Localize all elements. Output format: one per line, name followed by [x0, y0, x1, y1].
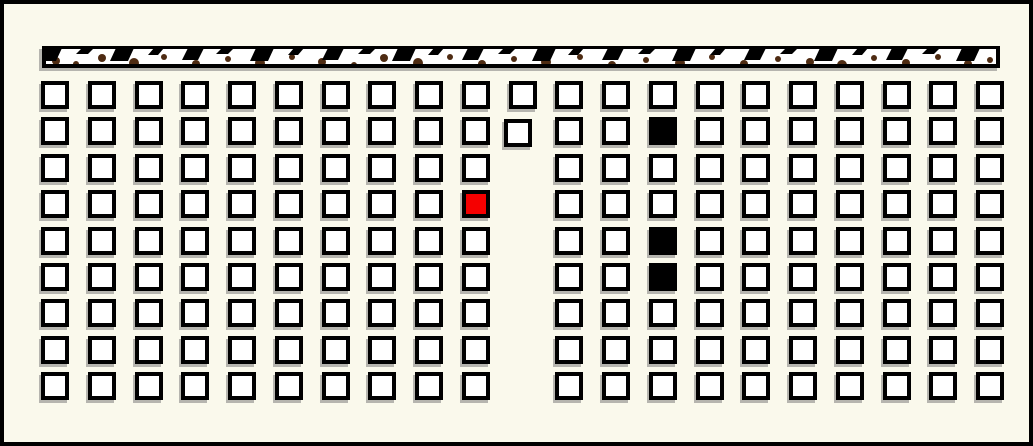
seat-cell[interactable]	[322, 81, 350, 109]
seat-cell[interactable]	[41, 190, 69, 218]
seat-cell[interactable]	[602, 154, 630, 182]
seat-cell[interactable]	[976, 190, 1004, 218]
seat-cell[interactable]	[368, 227, 396, 255]
seat-cell[interactable]	[181, 372, 209, 400]
seat-cell[interactable]	[41, 299, 69, 327]
seat-cell[interactable]	[135, 117, 163, 145]
seat-cell[interactable]	[135, 372, 163, 400]
seat-cell[interactable]	[41, 336, 69, 364]
seat-cell[interactable]	[368, 263, 396, 291]
seat-cell[interactable]	[742, 336, 770, 364]
seat-cell[interactable]	[742, 81, 770, 109]
seat-cell[interactable]	[836, 299, 864, 327]
seat-cell[interactable]	[41, 263, 69, 291]
seat-cell-red[interactable]	[462, 190, 490, 218]
seat-cell[interactable]	[275, 227, 303, 255]
seat-cell[interactable]	[602, 81, 630, 109]
seat-cell[interactable]	[555, 299, 583, 327]
seat-cell[interactable]	[462, 299, 490, 327]
seat-cell[interactable]	[649, 190, 677, 218]
seat-cell[interactable]	[228, 372, 256, 400]
board-strip	[42, 46, 1000, 68]
seat-cell[interactable]	[41, 117, 69, 145]
seat-cell[interactable]	[88, 372, 116, 400]
seat-cell[interactable]	[368, 299, 396, 327]
seat-cell[interactable]	[789, 299, 817, 327]
seat-cell[interactable]	[976, 336, 1004, 364]
seat-cell[interactable]	[696, 227, 724, 255]
seat-cell[interactable]	[976, 299, 1004, 327]
seat-cell[interactable]	[883, 81, 911, 109]
seat-cell[interactable]	[883, 336, 911, 364]
seat-cell[interactable]	[789, 154, 817, 182]
seat-cell[interactable]	[929, 263, 957, 291]
seat-cell[interactable]	[368, 372, 396, 400]
seat-cell[interactable]	[275, 190, 303, 218]
seat-cell[interactable]	[322, 190, 350, 218]
seat-cell[interactable]	[555, 154, 583, 182]
seat-cell[interactable]	[88, 227, 116, 255]
seat-cell[interactable]	[41, 81, 69, 109]
seat-cell[interactable]	[462, 263, 490, 291]
seat-cell[interactable]	[415, 299, 443, 327]
seat-cell[interactable]	[602, 190, 630, 218]
seat-cell[interactable]	[555, 336, 583, 364]
seat-cell[interactable]	[368, 81, 396, 109]
seat-cell[interactable]	[789, 227, 817, 255]
seat-cell[interactable]	[415, 263, 443, 291]
seat-cell[interactable]	[976, 117, 1004, 145]
seat-cell[interactable]	[368, 154, 396, 182]
seat-cell[interactable]	[275, 81, 303, 109]
seat-cell[interactable]	[41, 372, 69, 400]
seat-cell[interactable]	[976, 81, 1004, 109]
seat-cell[interactable]	[228, 190, 256, 218]
seat-cell[interactable]	[555, 227, 583, 255]
seat-cell[interactable]	[742, 263, 770, 291]
seat-cell[interactable]	[415, 117, 443, 145]
seat-cell[interactable]	[929, 372, 957, 400]
seat-cell[interactable]	[602, 336, 630, 364]
seat-cell[interactable]	[649, 336, 677, 364]
board-strip-svg	[42, 46, 1000, 68]
seat-cell[interactable]	[88, 299, 116, 327]
seat-cell[interactable]	[88, 81, 116, 109]
seat-cell[interactable]	[929, 81, 957, 109]
seat-cell[interactable]	[696, 263, 724, 291]
seat-cell[interactable]	[415, 227, 443, 255]
seat-cell[interactable]	[976, 227, 1004, 255]
seat-cell[interactable]	[181, 336, 209, 364]
seat-cell[interactable]	[415, 154, 443, 182]
seat-cell[interactable]	[462, 117, 490, 145]
seat-cell[interactable]	[929, 117, 957, 145]
seat-cell[interactable]	[228, 227, 256, 255]
seat-cell[interactable]	[836, 117, 864, 145]
seat-cell[interactable]	[649, 154, 677, 182]
seat-cell[interactable]	[555, 81, 583, 109]
seat-cell[interactable]	[135, 190, 163, 218]
seat-cell[interactable]	[742, 227, 770, 255]
seat-cell[interactable]	[462, 227, 490, 255]
seat-cell[interactable]	[322, 154, 350, 182]
seat-cell[interactable]	[929, 299, 957, 327]
seat-cell[interactable]	[41, 227, 69, 255]
seat-cell[interactable]	[696, 81, 724, 109]
seat-cell[interactable]	[275, 372, 303, 400]
seat-cell[interactable]	[228, 154, 256, 182]
seat-cell[interactable]	[649, 372, 677, 400]
seat-cell[interactable]	[228, 299, 256, 327]
seat-cell[interactable]	[555, 263, 583, 291]
seat-cell[interactable]	[181, 190, 209, 218]
seat-cell[interactable]	[135, 263, 163, 291]
seat-cell[interactable]	[929, 190, 957, 218]
seat-cell[interactable]	[322, 227, 350, 255]
seat-cell[interactable]	[789, 263, 817, 291]
seat-cell[interactable]	[181, 154, 209, 182]
seat-cell[interactable]	[602, 299, 630, 327]
seat-cell[interactable]	[555, 190, 583, 218]
seat-cell[interactable]	[649, 299, 677, 327]
seat-cell[interactable]	[696, 336, 724, 364]
seat-cell[interactable]	[181, 117, 209, 145]
seat-cell[interactable]	[275, 299, 303, 327]
seat-cell[interactable]	[41, 154, 69, 182]
seat-cell[interactable]	[509, 81, 537, 109]
seat-cell[interactable]	[602, 117, 630, 145]
seat-cell[interactable]	[836, 154, 864, 182]
seat-cell[interactable]	[836, 81, 864, 109]
seat-cell[interactable]	[275, 117, 303, 145]
seat-cell[interactable]	[181, 299, 209, 327]
seat-cell[interactable]	[696, 154, 724, 182]
seat-cell[interactable]	[88, 190, 116, 218]
seat-cell[interactable]	[181, 227, 209, 255]
seat-cell[interactable]	[228, 117, 256, 145]
seat-cell[interactable]	[228, 81, 256, 109]
seat-cell[interactable]	[789, 190, 817, 218]
seat-cell[interactable]	[696, 299, 724, 327]
seat-cell[interactable]	[742, 117, 770, 145]
seat-cell[interactable]	[836, 227, 864, 255]
seat-cell[interactable]	[415, 336, 443, 364]
seat-cell[interactable]	[883, 154, 911, 182]
seat-cell-black[interactable]	[649, 227, 677, 255]
seat-cell[interactable]	[836, 190, 864, 218]
seat-cell-offset[interactable]	[504, 119, 532, 147]
seat-cell[interactable]	[88, 154, 116, 182]
seat-cell[interactable]	[602, 263, 630, 291]
seat-cell[interactable]	[742, 299, 770, 327]
seat-cell-black[interactable]	[649, 117, 677, 145]
seat-cell[interactable]	[742, 190, 770, 218]
seat-cell[interactable]	[789, 372, 817, 400]
seat-cell[interactable]	[135, 299, 163, 327]
seat-cell[interactable]	[883, 190, 911, 218]
seat-cell[interactable]	[368, 336, 396, 364]
seat-cell[interactable]	[415, 372, 443, 400]
seat-cell[interactable]	[275, 263, 303, 291]
seat-cell[interactable]	[976, 154, 1004, 182]
seat-cell[interactable]	[462, 81, 490, 109]
seat-cell[interactable]	[929, 227, 957, 255]
seat-cell[interactable]	[415, 81, 443, 109]
seat-cell[interactable]	[181, 263, 209, 291]
seat-cell[interactable]	[322, 336, 350, 364]
seat-cell[interactable]	[322, 263, 350, 291]
seat-cell[interactable]	[275, 336, 303, 364]
seat-cell[interactable]	[555, 117, 583, 145]
seat-cell[interactable]	[462, 372, 490, 400]
seat-cell[interactable]	[368, 117, 396, 145]
seat-cell[interactable]	[883, 372, 911, 400]
seat-cell[interactable]	[742, 372, 770, 400]
seat-cell[interactable]	[696, 190, 724, 218]
seat-cell[interactable]	[602, 372, 630, 400]
seat-cell[interactable]	[883, 263, 911, 291]
seat-cell[interactable]	[696, 117, 724, 145]
seat-cell[interactable]	[322, 372, 350, 400]
seat-cell[interactable]	[883, 299, 911, 327]
seat-cell[interactable]	[555, 372, 583, 400]
seat-cell[interactable]	[789, 117, 817, 145]
seat-cell[interactable]	[181, 81, 209, 109]
seat-cell[interactable]	[976, 372, 1004, 400]
seat-cell[interactable]	[88, 336, 116, 364]
window-frame	[0, 0, 1033, 446]
seat-cell[interactable]	[135, 154, 163, 182]
seat-cell[interactable]	[275, 154, 303, 182]
seat-cell[interactable]	[228, 263, 256, 291]
seat-cell[interactable]	[929, 336, 957, 364]
seat-cell[interactable]	[88, 117, 116, 145]
seat-cell[interactable]	[836, 372, 864, 400]
seat-cell[interactable]	[976, 263, 1004, 291]
seat-cell[interactable]	[135, 227, 163, 255]
seat-cell[interactable]	[789, 336, 817, 364]
seat-cell[interactable]	[368, 190, 396, 218]
seat-cell[interactable]	[135, 336, 163, 364]
seat-cell[interactable]	[929, 154, 957, 182]
seat-cell-black[interactable]	[649, 263, 677, 291]
seat-cell[interactable]	[322, 117, 350, 145]
seat-cell[interactable]	[322, 299, 350, 327]
seat-cell[interactable]	[696, 372, 724, 400]
seat-cell[interactable]	[836, 263, 864, 291]
seat-cell[interactable]	[462, 154, 490, 182]
seat-cell[interactable]	[649, 81, 677, 109]
seat-cell[interactable]	[602, 227, 630, 255]
seat-cell[interactable]	[883, 117, 911, 145]
seat-cell[interactable]	[228, 336, 256, 364]
seat-cell[interactable]	[415, 190, 443, 218]
seat-cell[interactable]	[135, 81, 163, 109]
seat-cell[interactable]	[883, 227, 911, 255]
seat-cell[interactable]	[836, 336, 864, 364]
seat-cell[interactable]	[789, 81, 817, 109]
seat-cell[interactable]	[462, 336, 490, 364]
seat-cell[interactable]	[742, 154, 770, 182]
seat-cell[interactable]	[88, 263, 116, 291]
